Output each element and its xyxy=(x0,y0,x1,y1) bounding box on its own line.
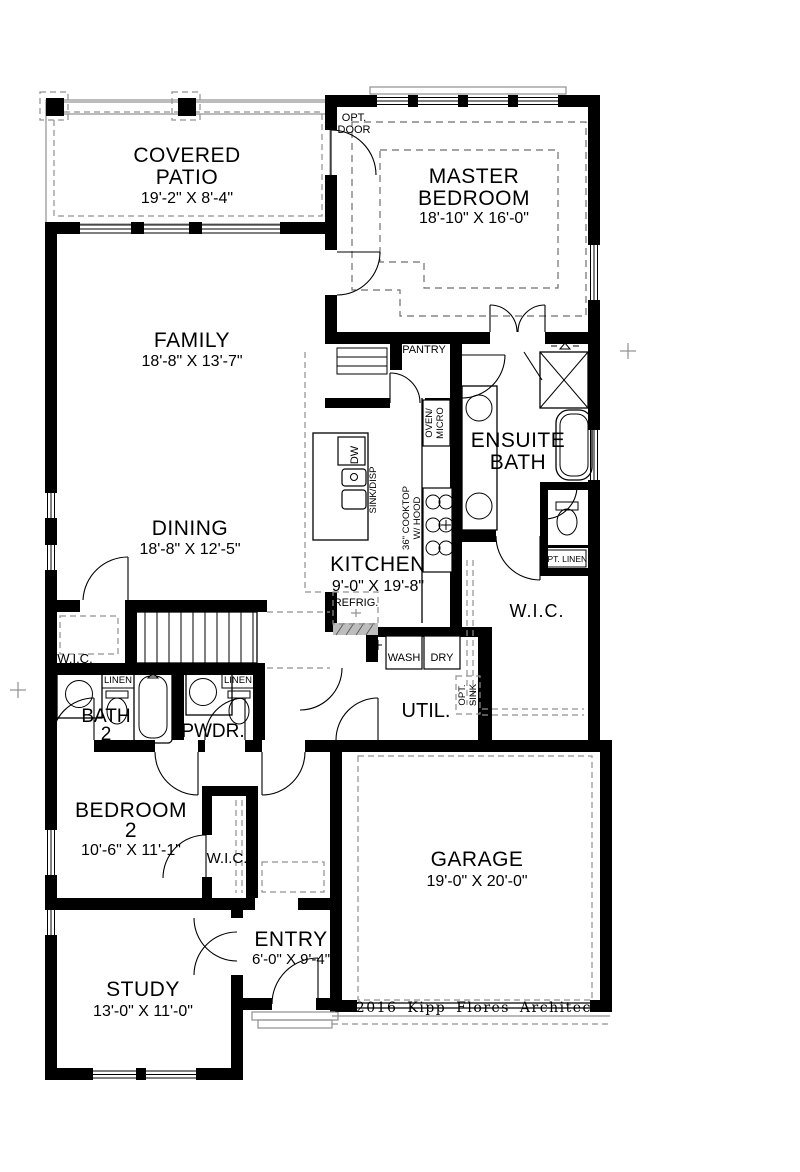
room-label-master-bedroom-1: MASTER xyxy=(429,165,520,188)
ensuite-toilet xyxy=(556,502,578,535)
label-cooktop-2: W/ HOOD xyxy=(412,496,423,539)
ensuite-sink xyxy=(466,493,492,519)
room-dims-study: 13'-0" X 11'-0" xyxy=(93,1003,193,1020)
room-label-study: STUDY xyxy=(106,978,180,1001)
room-label-master-bedroom-2: BEDROOM xyxy=(418,187,530,210)
powder-toilet xyxy=(228,691,250,724)
bath-fixtures xyxy=(57,343,592,743)
room-label-bedroom2-wic: W.I.C. xyxy=(207,850,248,867)
label-sink-disp: SINK/DISP xyxy=(368,467,379,514)
room-dims-master-bedroom: 18'-10" X 16'-0" xyxy=(419,210,529,227)
label-dishwasher: DW xyxy=(349,445,361,464)
room-label-ensuite-1: ENSUITE xyxy=(471,429,566,452)
room-label-ensuite-2: BATH xyxy=(490,451,546,474)
entry-porch-steps xyxy=(252,1012,338,1028)
stairs xyxy=(133,612,257,663)
room-labels: COVERED PATIO 19'-2" X 8'-4" MASTER BEDR… xyxy=(57,144,565,1020)
room-dims-family: 18'-8" X 13'-7" xyxy=(141,353,242,370)
label-opt-linen: OPT. LINEN xyxy=(541,554,587,564)
room-dims-entry: 6'-0" X 9'-4" xyxy=(252,951,330,968)
room-dims-kitchen: 9'-0" X 19'-8" xyxy=(332,578,424,595)
kitchen-sink-bowl xyxy=(342,490,366,509)
bath2-sink xyxy=(66,681,93,708)
label-opt-door-2: DOOR xyxy=(338,124,371,136)
room-dims-bedroom2: 10'-6" X 11'-1" xyxy=(81,842,181,859)
room-label-family: FAMILY xyxy=(154,329,230,352)
label-oven-micro-1: OVEN/ xyxy=(424,408,435,438)
label-refrig: REFRIG. xyxy=(334,597,379,609)
room-label-hall-wic: W.I.C. xyxy=(57,651,92,666)
room-label-entry: ENTRY xyxy=(254,928,327,951)
room-label-powder: PWDR. xyxy=(181,721,244,742)
room-dims-covered-patio: 19'-2" X 8'-4" xyxy=(141,190,233,207)
label-opt-sink-2: SINK xyxy=(468,683,479,706)
room-label-bath2-2: 2 xyxy=(101,724,112,745)
room-label-covered-patio-2: PATIO xyxy=(156,166,218,189)
floor-plan-page: COVERED PATIO 19'-2" X 8'-4" MASTER BEDR… xyxy=(0,0,800,1172)
label-wash: WASH xyxy=(388,652,421,664)
ensuite-shower xyxy=(540,343,588,408)
label-cooktop-1: 36" COOKTOP xyxy=(401,486,412,550)
label-oven-micro-2: MICRO xyxy=(435,407,446,439)
label-dry: DRY xyxy=(430,652,454,664)
label-pantry: PANTRY xyxy=(402,344,446,356)
floor-plan-svg: COVERED PATIO 19'-2" X 8'-4" MASTER BEDR… xyxy=(0,0,800,1172)
room-label-utility: UTIL. xyxy=(402,700,451,722)
room-label-garage: GARAGE xyxy=(431,848,524,871)
label-linen-bath2: LINEN xyxy=(104,675,132,686)
label-opt-door-1: OPT. xyxy=(342,112,366,124)
label-opt-sink-1: OPT. xyxy=(457,684,468,705)
room-label-master-wic: W.I.C. xyxy=(510,601,565,621)
ensuite-sink xyxy=(466,395,492,421)
room-label-bedroom2-2: 2 xyxy=(125,819,137,842)
room-label-kitchen: KITCHEN xyxy=(330,553,426,576)
powder-sink xyxy=(190,679,217,706)
bath2-tub xyxy=(134,671,172,743)
room-label-covered-patio-1: COVERED xyxy=(133,144,240,167)
room-dims-dining: 18'-8" X 12'-5" xyxy=(139,541,240,558)
room-dims-garage: 19'-0" X 20'-0" xyxy=(426,873,527,890)
room-label-dining: DINING xyxy=(152,517,229,540)
kitchen-sink-bowl xyxy=(342,469,366,486)
copyright-notice: © 2016 Kipp Flores Architects xyxy=(330,1000,607,1016)
label-linen-powder: LINEN xyxy=(224,675,252,686)
